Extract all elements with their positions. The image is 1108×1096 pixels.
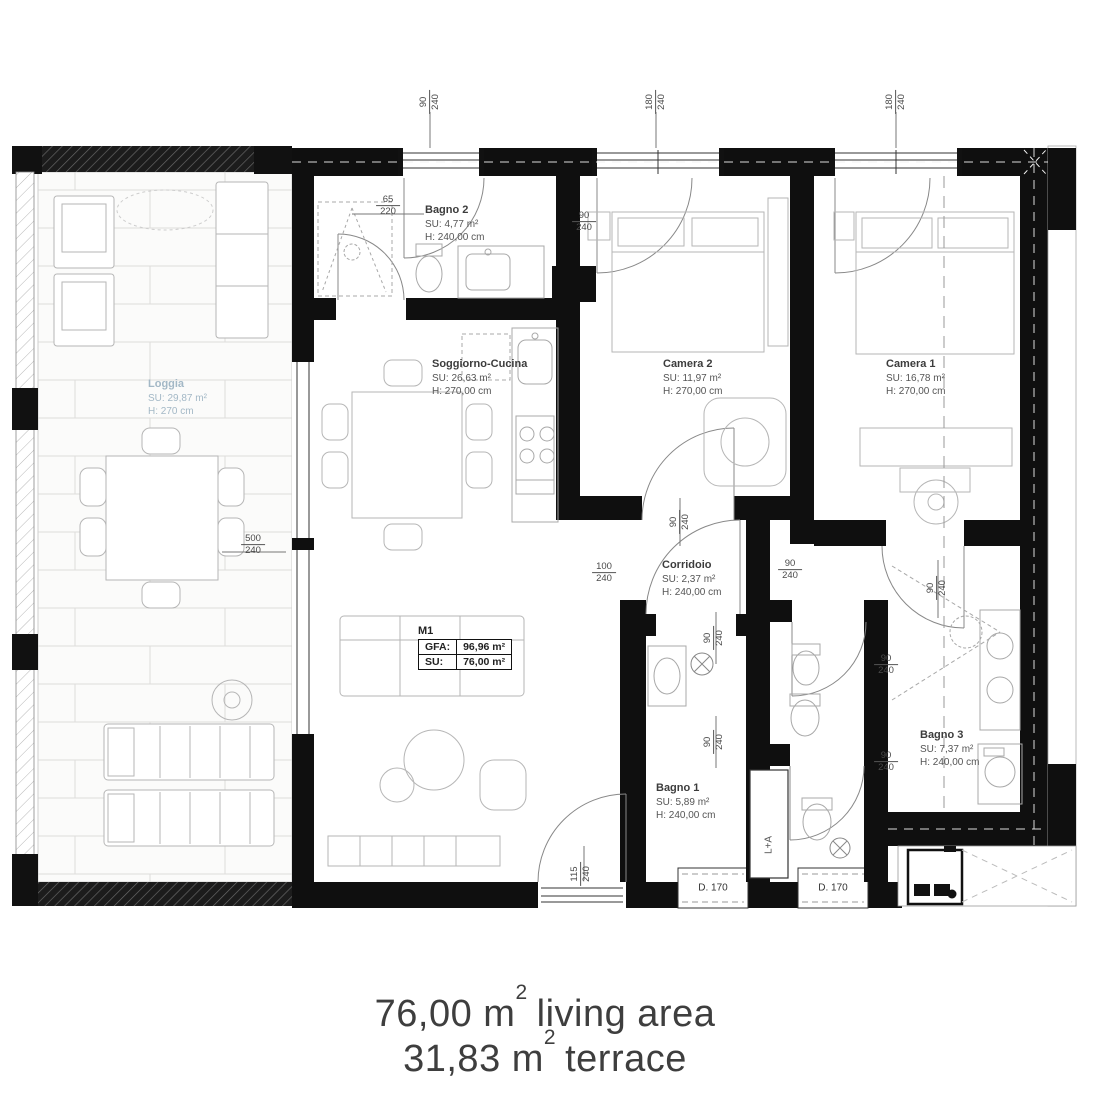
terrace-area-value: 31,83 m — [403, 1038, 544, 1080]
su-label: SU: — [419, 655, 457, 670]
dimension-window-2: 180240 — [644, 90, 668, 114]
su-value: 76,00 m² — [457, 655, 512, 670]
dimension-corridoio-right: 90240 — [778, 558, 802, 582]
dimension-window-3: 180240 — [884, 90, 908, 114]
furniture-living — [322, 360, 526, 866]
unit-area-box: M1 GFA: 96,96 m² SU: 76,00 m² — [418, 625, 512, 670]
gfa-label: GFA: — [419, 640, 457, 655]
room-label-corridoio: Corridoio SU: 2,37 m² H: 240,00 cm — [662, 558, 721, 600]
floor-plan-drawing — [0, 0, 1108, 960]
living-area-text: living area — [537, 993, 716, 1035]
living-area-sup: 2 — [515, 981, 527, 1004]
room-label-camera1: Camera 1 SU: 16,78 m² H: 270,00 cm — [886, 357, 945, 399]
dimension-wc2-right: 90240 — [874, 750, 898, 774]
dimension-wc2-door: 90240 — [702, 730, 726, 754]
shaft — [898, 846, 1076, 906]
loggia-terrace — [12, 146, 292, 906]
dimension-bagno2-door: 65220 — [376, 194, 400, 218]
dimension-bagno3-door: 90240 — [925, 576, 949, 600]
dimension-corridoio-left: 100240 — [592, 561, 616, 585]
room-label-bagno3: Bagno 3 SU: 7,37 m² H: 240,00 cm — [920, 728, 979, 770]
area-caption: 76,00 m2living area 31,83 m2terrace — [0, 992, 1090, 1082]
living-area-value: 76,00 m — [375, 993, 516, 1035]
room-label-bagno2: Bagno 2 SU: 4,77 m² H: 240,00 cm — [425, 203, 484, 245]
interior-walls — [292, 148, 1022, 882]
floor-plan-page: Bagno 2 SU: 4,77 m² H: 240,00 cm Soggior… — [0, 0, 1108, 1096]
room-label-camera2: Camera 2 SU: 11,97 m² H: 270,00 cm — [663, 357, 722, 399]
dimension-corridoio-top: 90240 — [668, 510, 692, 534]
dimension-wc1-right: 90240 — [874, 653, 898, 677]
furniture-camera2 — [588, 198, 788, 486]
dimension-window-1: 90240 — [418, 90, 442, 114]
terrace-area-text: terrace — [565, 1038, 687, 1080]
room-label-loggia: Loggia SU: 29,87 m² H: 270 cm — [148, 377, 207, 419]
room-label-bagno1: Bagno 1 SU: 5,89 m² H: 240,00 cm — [656, 781, 715, 823]
skylight-label-1: D. 170 — [698, 883, 727, 894]
dimension-loggia-door: 500240 — [241, 533, 265, 557]
closet-label: L+A — [764, 836, 775, 854]
terrace-area-line: 31,83 m2terrace — [0, 1037, 1090, 1082]
dimension-camera2-door: 90240 — [572, 210, 596, 234]
terrace-area-sup: 2 — [544, 1026, 556, 1049]
room-label-soggiorno: Soggiorno-Cucina SU: 26,63 m² H: 270,00 … — [432, 357, 527, 399]
skylight-label-2: D. 170 — [818, 883, 847, 894]
gfa-value: 96,96 m² — [457, 640, 512, 655]
dimension-terrace-door: 115240 — [569, 862, 593, 886]
dimension-wc1-door: 90240 — [702, 626, 726, 650]
